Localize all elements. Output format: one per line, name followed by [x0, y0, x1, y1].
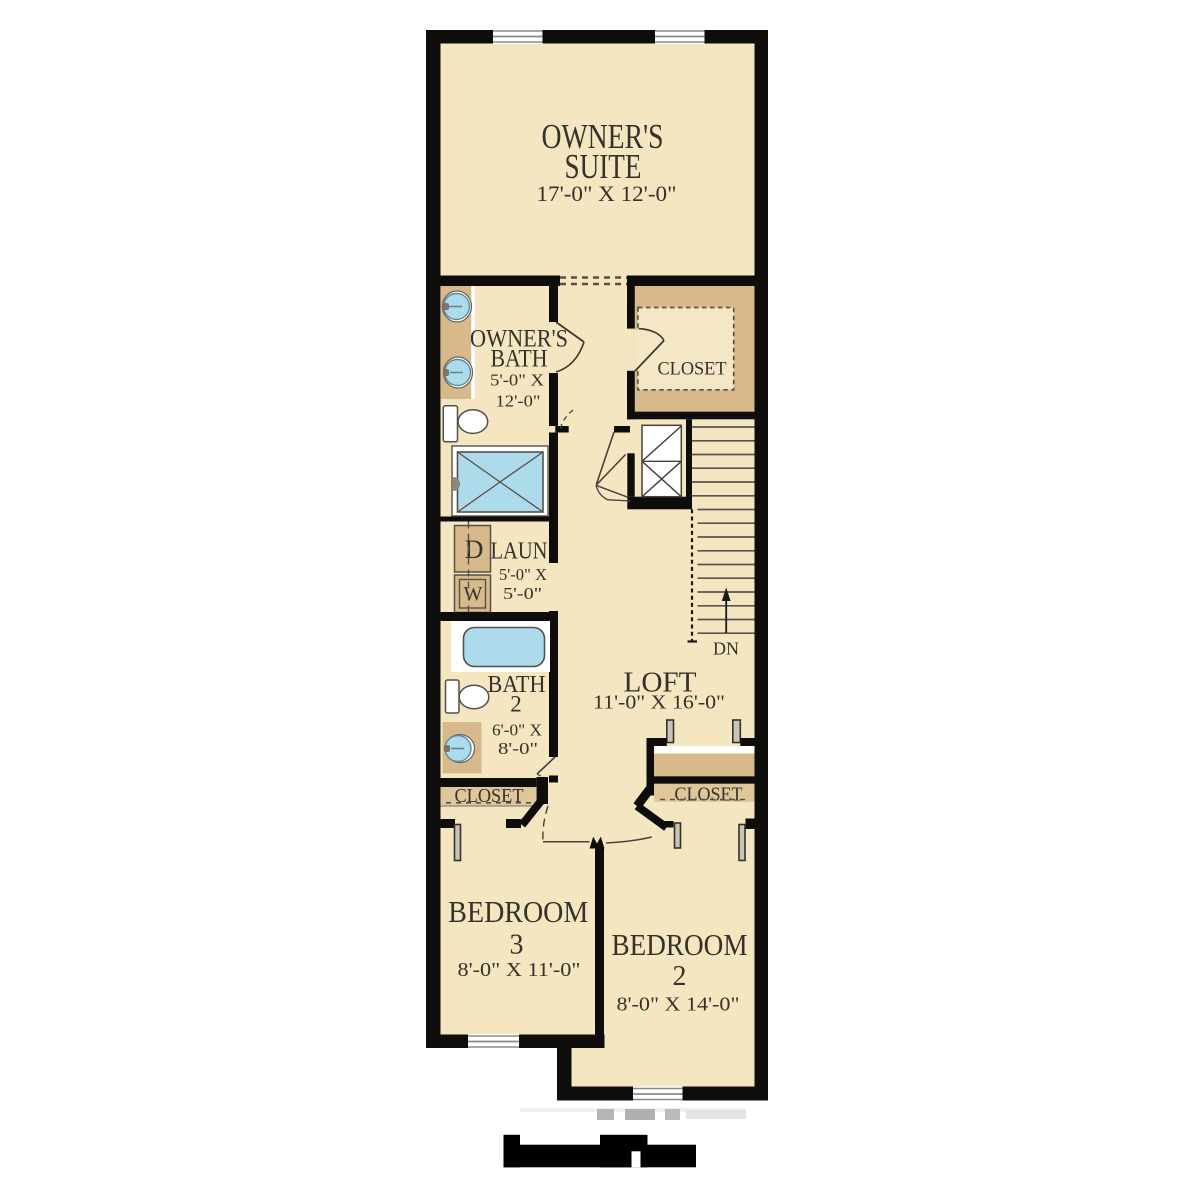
svg-text:DN: DN	[713, 639, 739, 659]
svg-text:6'-0" X: 6'-0" X	[492, 721, 542, 740]
svg-text:12'-0": 12'-0"	[496, 392, 541, 411]
svg-text:W: W	[464, 583, 483, 605]
svg-text:17'-0" X 12'-0": 17'-0" X 12'-0"	[537, 181, 677, 206]
svg-text:BEDROOM: BEDROOM	[612, 927, 748, 962]
svg-text:CLOSET: CLOSET	[455, 786, 524, 807]
svg-text:BEDROOM: BEDROOM	[448, 894, 588, 929]
svg-text:5'-0" X: 5'-0" X	[490, 371, 544, 390]
svg-text:D: D	[465, 535, 484, 564]
svg-text:5'-0": 5'-0"	[503, 584, 542, 603]
svg-text:5'-0" X: 5'-0" X	[499, 565, 547, 584]
svg-text:CLOSET: CLOSET	[675, 785, 743, 806]
svg-text:8'-0": 8'-0"	[498, 739, 538, 758]
svg-text:11'-0" X 16'-0": 11'-0" X 16'-0"	[593, 692, 725, 714]
svg-text:LAUN: LAUN	[491, 539, 548, 565]
svg-text:8'-0" X 11'-0": 8'-0" X 11'-0"	[458, 959, 581, 981]
svg-text:2: 2	[510, 692, 522, 717]
svg-text:CLOSET: CLOSET	[658, 359, 727, 380]
svg-text:2: 2	[673, 961, 687, 992]
svg-text:BATH: BATH	[491, 344, 548, 373]
svg-text:3: 3	[510, 930, 524, 961]
svg-text:8'-0" X 14'-0": 8'-0" X 14'-0"	[617, 994, 740, 1016]
